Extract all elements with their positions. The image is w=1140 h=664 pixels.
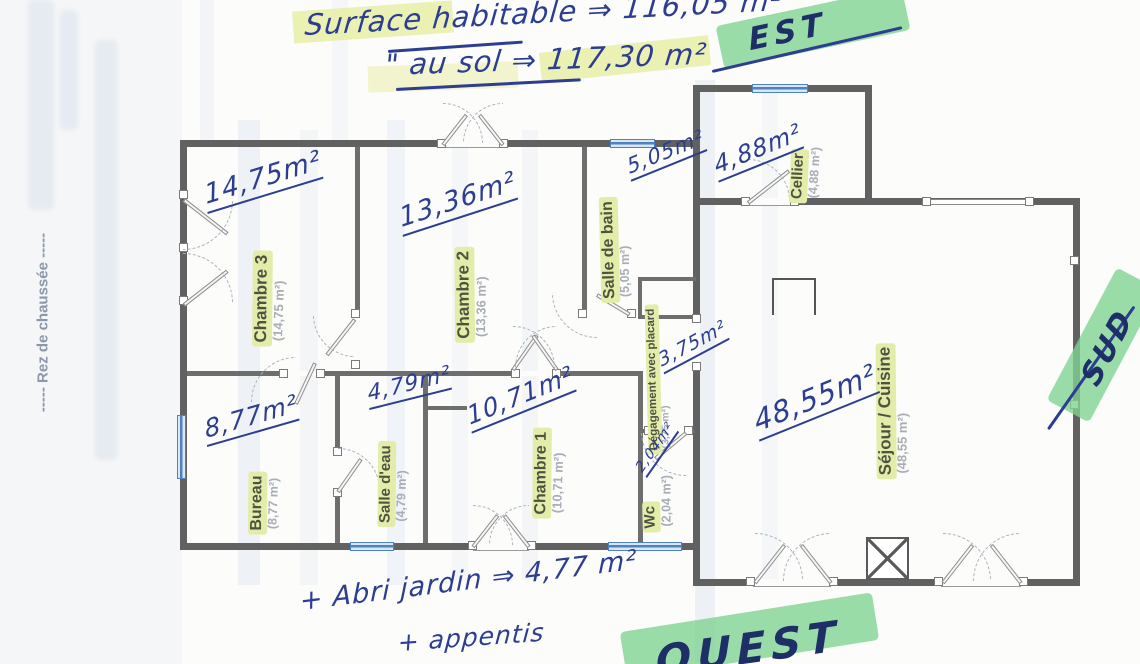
- room-label-chambre2: Chambre 2 (13,36 m²): [454, 213, 500, 344]
- room-area: (8,77 m²): [266, 425, 284, 535]
- room-area: (48,55 m²): [895, 304, 912, 479]
- jamb: [511, 369, 520, 378]
- window-cellier: [752, 84, 808, 93]
- scanned-floor-plan-page: Chambre 3 (14,75 m²) Chambre 2 (13,36 m²…: [0, 0, 1140, 664]
- hw-area-chambre3: 14,75m²: [202, 145, 323, 214]
- room-name: Chambre 1: [532, 428, 551, 519]
- room-area: (4,88 m²): [806, 94, 827, 205]
- room-name: Chambre 3: [252, 251, 273, 347]
- room-name: Bureau: [248, 471, 267, 534]
- room-label-salle-deau: Salle d'eau (4,79 m²): [376, 402, 420, 528]
- jamb: [316, 369, 325, 378]
- wall-chambre3-chambre2: [355, 147, 360, 313]
- room-area: (14,75 m²): [270, 217, 289, 347]
- hw-surface-au-sol: " au sol ⇒ 117,30 m²: [383, 37, 709, 82]
- scan-streak: [200, 0, 214, 140]
- room-name: Chambre 2: [454, 247, 475, 343]
- jamb: [692, 314, 701, 323]
- floor-label-rez-de-chaussee: ----- Rez de chaussée -----: [35, 198, 52, 448]
- wall-chambre2-salledebain: [582, 147, 587, 313]
- bleedthrough-smudge: [28, 0, 54, 210]
- room-area: (4,79 m²): [394, 402, 412, 527]
- jamb: [922, 197, 931, 206]
- room-area: (10,71 m²): [550, 399, 568, 519]
- room-label-chambre1: Chambre 1 (10,71 m²): [531, 398, 575, 519]
- wall-stub-chambre1: [423, 406, 467, 410]
- room-name: Salle de bain: [599, 197, 620, 303]
- hw-appentis: + appentis: [397, 618, 546, 657]
- room-name: Séjour / Cuisine: [876, 343, 897, 480]
- window-sejour-north: [925, 199, 1030, 205]
- bleedthrough-smudge: [95, 40, 117, 460]
- room-name: Salle d'eau: [377, 441, 395, 527]
- chimney-symbol: [866, 537, 909, 580]
- scan-streak: [300, 130, 318, 585]
- window-salledeau-south: [350, 542, 394, 551]
- hw-area-sejour: 48,55m²: [750, 357, 879, 442]
- room-name: Wc: [642, 502, 660, 533]
- bleedthrough-smudge: [60, 10, 78, 130]
- room-label-chambre3: Chambre 3 (14,75 m²): [251, 216, 300, 347]
- room-area: (13,36 m²): [474, 213, 491, 343]
- hw-abri-jardin: + Abri jardin ⇒ 4,77 m²: [300, 544, 638, 617]
- hw-surface-habitable: Surface habitable ⇒ 116,05 m²: [304, 0, 784, 42]
- window-bureau: [177, 415, 186, 479]
- jamb: [351, 360, 360, 369]
- room-label-sejour-cuisine: Séjour / Cuisine (48,55 m²): [875, 304, 920, 480]
- room-name: Cellier: [789, 149, 809, 204]
- jamb: [692, 362, 701, 371]
- jamb: [179, 190, 188, 199]
- room-label-bureau: Bureau (8,77 m²): [247, 424, 291, 535]
- wall-cellier-east: [865, 85, 872, 205]
- wall-salledeau-chambre1: [423, 376, 428, 543]
- jamb: [1070, 256, 1079, 265]
- jamb: [1025, 197, 1034, 206]
- fireplace-symbol: [772, 278, 816, 315]
- door-leaf: [294, 362, 317, 404]
